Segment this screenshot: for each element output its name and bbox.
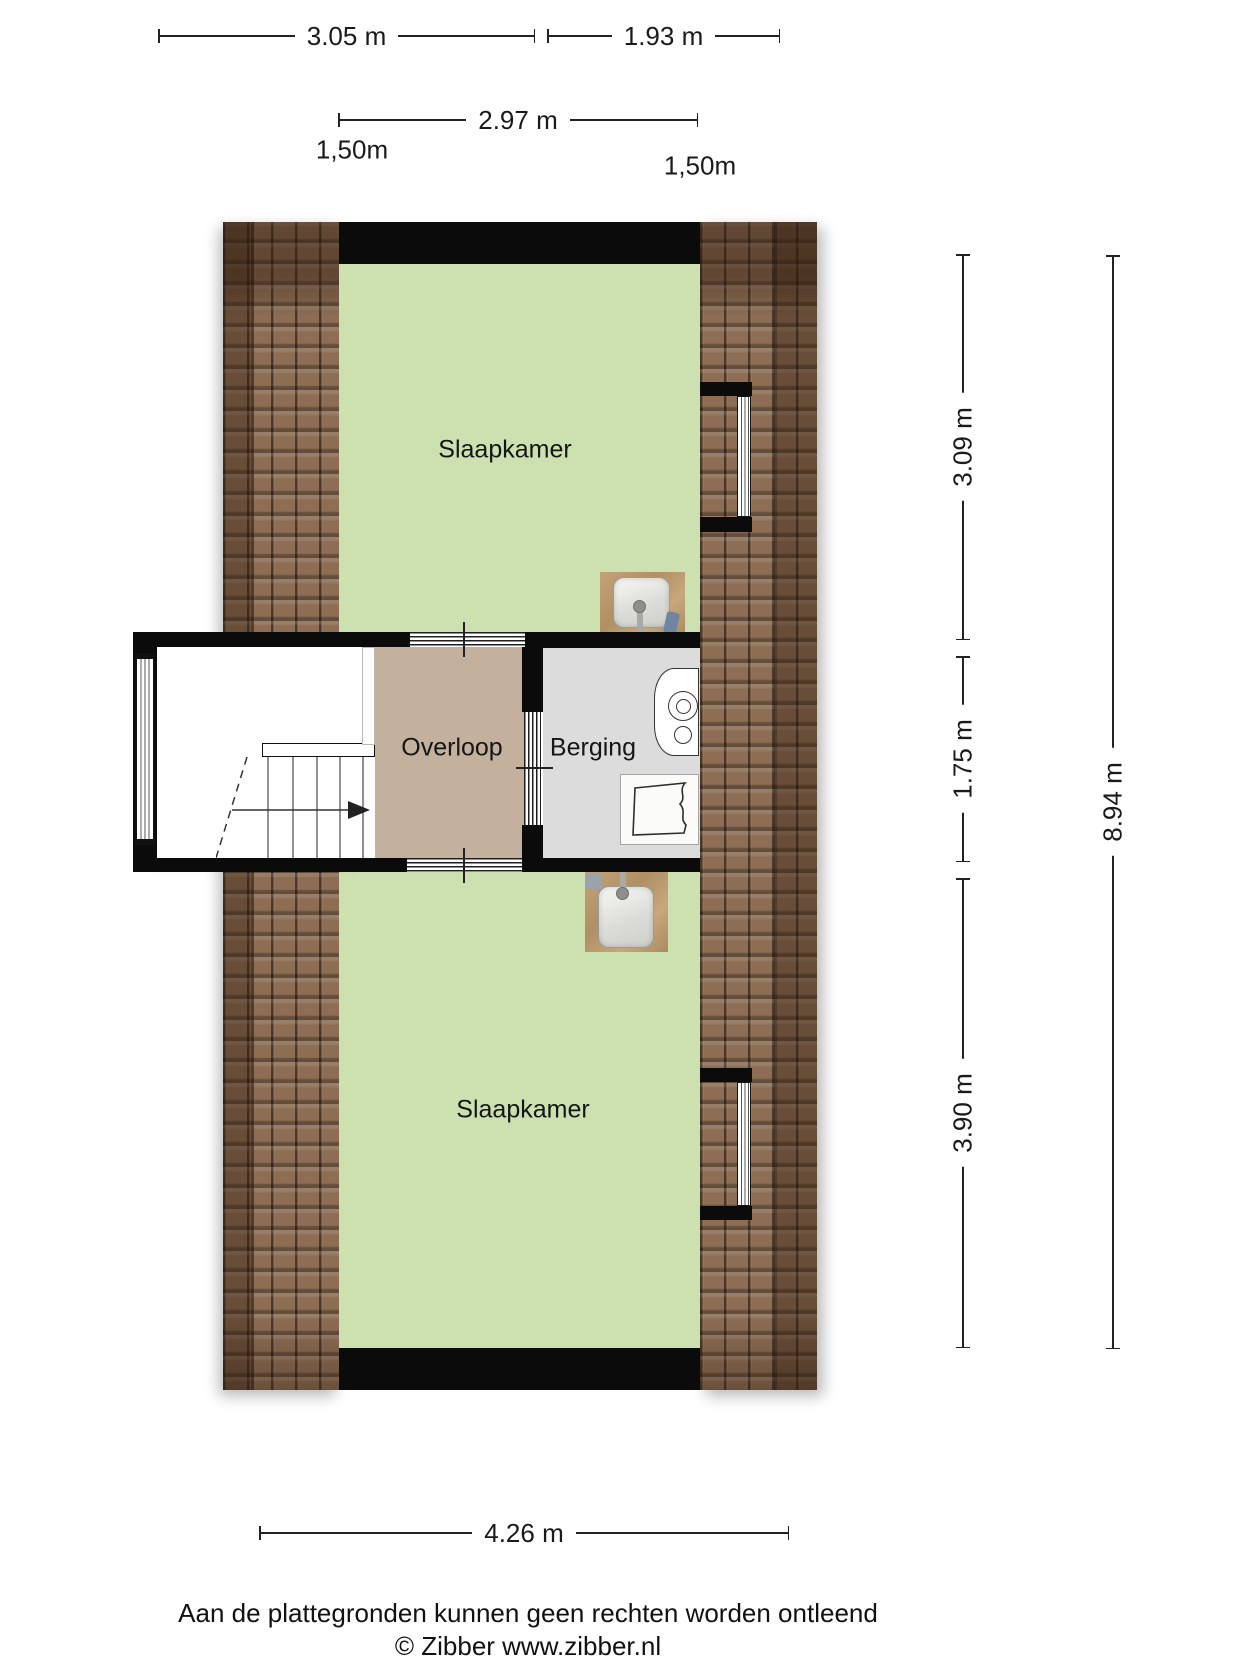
faucet-knob-icon (616, 887, 629, 900)
faucet-knob-icon (633, 600, 646, 613)
wall-middle-lower-right (522, 858, 700, 872)
wall-middle-lower-left (133, 858, 407, 872)
window-jamb (700, 517, 752, 532)
washing-machine-door-inner-icon (676, 699, 691, 714)
footer-disclaimer: Aan de plattegronden kunnen geen rechten… (0, 1597, 1056, 1630)
room-label-bedroom-bottom: Slaapkamer (456, 1096, 589, 1125)
dimension-label: 1.75 m (948, 705, 979, 813)
dimension-tick (697, 113, 699, 127)
wall-storage-left-lower (522, 825, 543, 858)
door-center-tick (463, 848, 465, 883)
window-jamb (700, 1068, 752, 1082)
dimension-tick (779, 29, 781, 43)
laundry-pile-icon (621, 775, 698, 844)
window-icon-bedroom-top (737, 396, 751, 517)
door-center-tick (516, 767, 553, 769)
window-jamb (700, 382, 752, 396)
knee-wall-height-label-right: 1,50m (664, 151, 736, 182)
wall-middle-upper-right (525, 632, 700, 648)
door-bedroom-top-landing (410, 632, 525, 647)
stairwell-landing-partition (362, 647, 375, 745)
dimension-tick (788, 1526, 790, 1540)
dimension-bottom-width: 4.26 m (259, 1518, 789, 1548)
dimension-label: 1.93 m (612, 21, 716, 52)
dimension-tick (534, 29, 536, 43)
window-icon-bedroom-bottom (737, 1082, 751, 1206)
dimension-label: 3.05 m (295, 21, 399, 52)
wall-storage-left-upper (522, 647, 543, 712)
dimension-tick (1106, 1348, 1120, 1350)
room-label-storage: Berging (550, 734, 636, 763)
stairs-arrow-head-icon (348, 801, 370, 819)
laundry-basket-icon (620, 774, 699, 845)
staircase-icon (216, 757, 372, 858)
dimension-tick (956, 639, 970, 641)
wall-middle-upper-left (133, 632, 410, 647)
window-jamb (700, 1206, 752, 1220)
dimension-inner-width: 2.97 m (338, 105, 698, 135)
dimension-label: 4.26 m (472, 1518, 576, 1549)
dimension-label: 8.94 m (1098, 748, 1129, 856)
floor-plan-page: 3.05 m 1.93 m 2.97 m 1,50m 1,50m (0, 0, 1250, 1667)
wall-top (339, 222, 700, 264)
knee-wall-height-label-left: 1,50m (316, 135, 388, 166)
footer: Aan de plattegronden kunnen geen rechten… (0, 1597, 1056, 1663)
room-label-bedroom-top: Slaapkamer (438, 436, 571, 465)
window-icon-stairwell (135, 653, 155, 845)
wall-bottom (339, 1348, 700, 1390)
dimension-tick (956, 861, 970, 863)
stair-railing (262, 743, 375, 757)
dimension-label: 3.90 m (948, 1059, 979, 1167)
dimension-top-left: 3.05 m (158, 21, 535, 51)
door-center-tick (463, 622, 465, 657)
footer-copyright: © Zibber www.zibber.nl (0, 1630, 1056, 1663)
dimension-top-right: 1.93 m (547, 21, 780, 51)
dimension-tick (956, 1347, 970, 1349)
dimension-label: 3.09 m (948, 393, 979, 501)
dimension-label: 2.97 m (466, 105, 570, 136)
stair-cut-dashed-line (216, 757, 247, 858)
room-label-landing: Overloop (401, 734, 502, 763)
washing-machine-knob-icon (674, 726, 692, 744)
soap-dispenser-icon (586, 873, 602, 889)
